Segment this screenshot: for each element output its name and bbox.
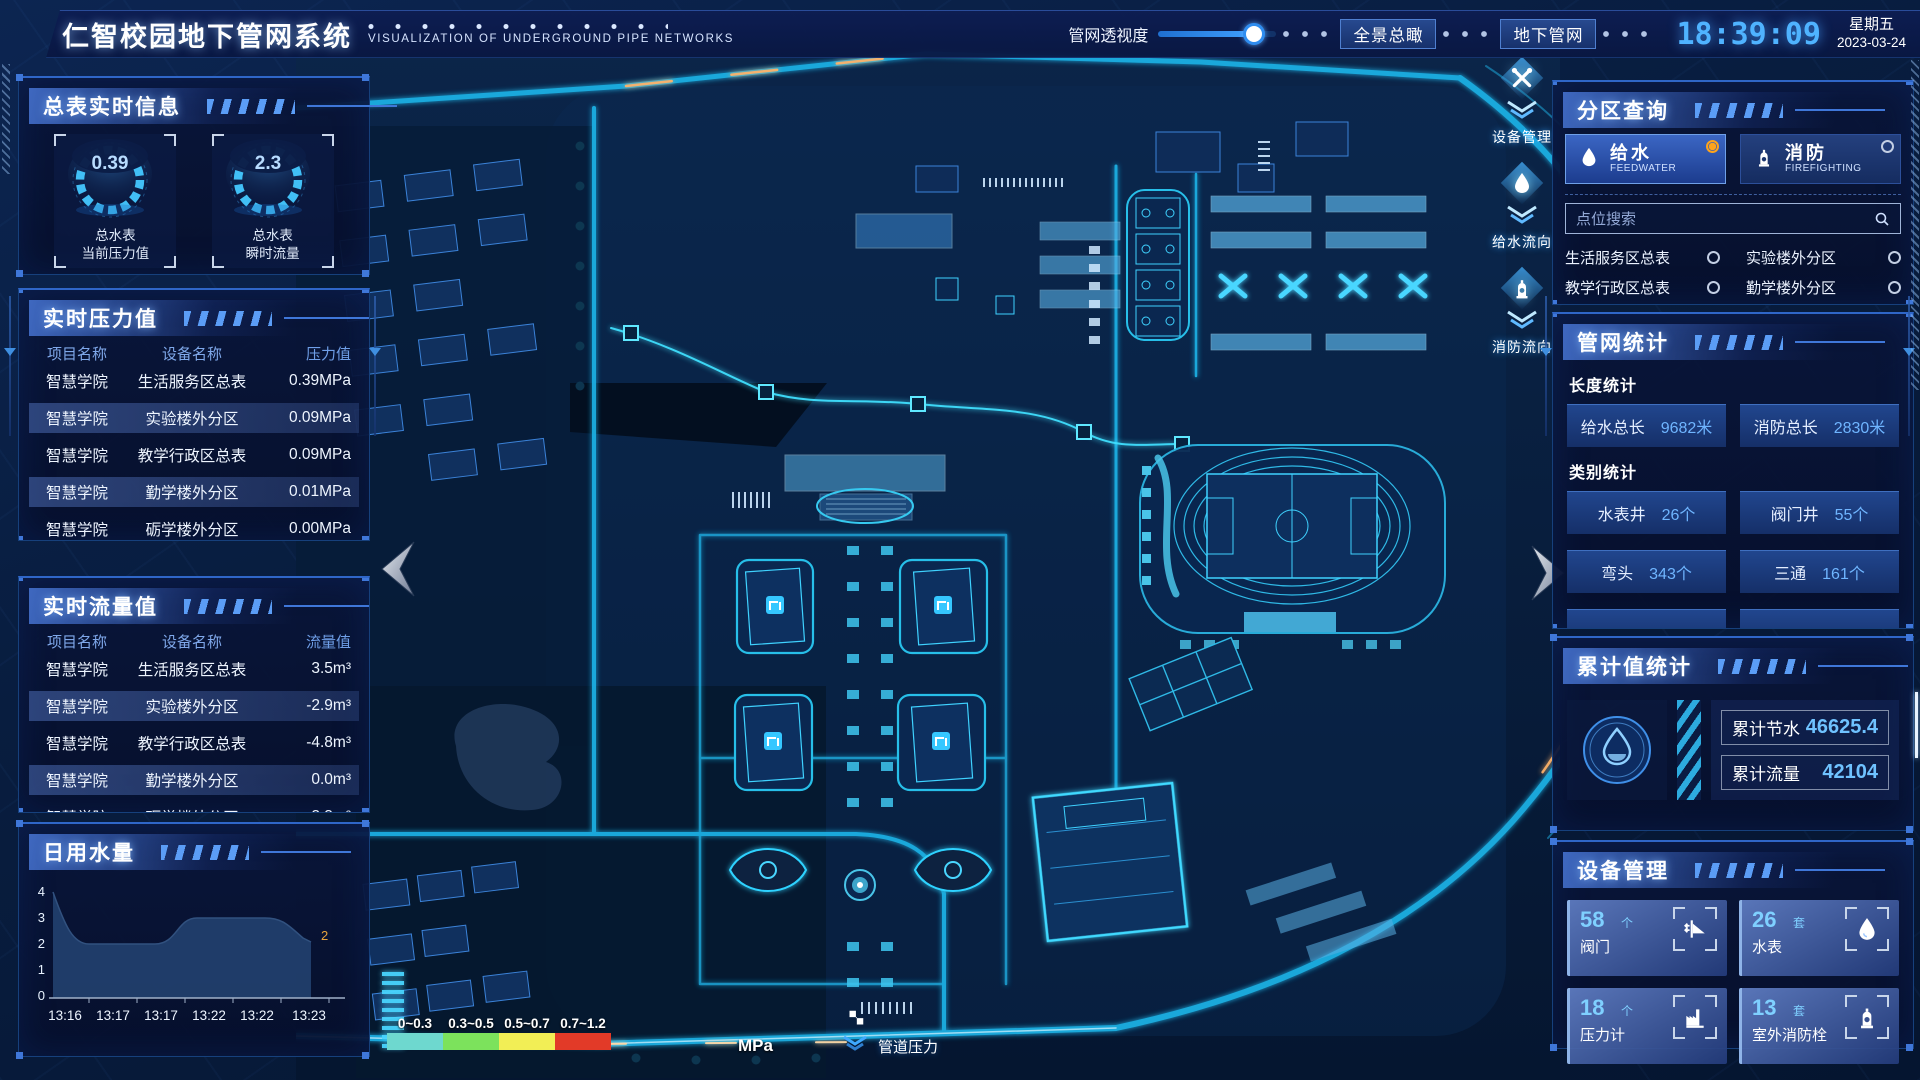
pipe-network-stats-panel: 管网统计 长度统计 给水总长 9682米 消防总长 2830米 类别统计 水表井… [1552, 312, 1914, 629]
dots-decoration [1282, 30, 1334, 38]
x-tick: 13:17 [144, 1008, 178, 1023]
x-tick: 13:22 [192, 1008, 226, 1023]
fire-flow-overlay-button[interactable]: 消防流向 [1492, 266, 1552, 357]
legend-color-green [443, 1033, 499, 1050]
triangle-marker [1540, 348, 1552, 356]
stat-box-clipped [1740, 609, 1899, 629]
col-project: 项目名称 [29, 343, 125, 364]
underground-pipes-button[interactable]: 地下管网 [1500, 19, 1596, 49]
zigzag-decoration [1911, 60, 1919, 390]
dots-decoration [1442, 30, 1494, 38]
zone-radio[interactable] [1707, 281, 1720, 294]
water-drop-badge [1567, 700, 1667, 800]
end-point-label: 2 [321, 928, 328, 943]
tab-radio-selected[interactable] [1706, 140, 1719, 153]
table-row: 智慧学院 砺学楼外分区 0.00MPa [29, 514, 359, 541]
gauge-pressure: 0.39 总水表 当前压力值 [54, 134, 176, 268]
y-tick: 0 [38, 988, 45, 1003]
point-search-input[interactable]: 点位搜索 [1565, 203, 1901, 234]
section-title: 实时流量值 [43, 591, 158, 621]
area-series [53, 892, 311, 998]
legend-unit: MPa [738, 1036, 773, 1056]
water-meter-icon [1845, 907, 1889, 951]
triangle-marker [4, 348, 16, 356]
chevron-down-icon [1505, 205, 1539, 225]
scroll-indicator[interactable] [1915, 692, 1918, 758]
stat-box: 给水总长 9682米 [1567, 404, 1726, 447]
section-title: 日用水量 [43, 837, 135, 867]
device-card-valves[interactable]: 58 个 阀门 [1567, 900, 1727, 976]
stat-box: 水表井 26个 [1567, 491, 1726, 534]
legend-color-red [555, 1033, 611, 1050]
device-card-water-meters[interactable]: 26 套 水表 [1739, 900, 1899, 976]
dashboard: 设备管理 给水流向 消防流向 [0, 0, 1920, 1080]
legend-range-label: 0.3~0.5 [443, 1016, 499, 1031]
gauge-value: 0.39 [92, 153, 129, 174]
zone-item[interactable]: 勤学楼外分区 [1746, 272, 1901, 302]
x-tick: 13:16 [48, 1008, 82, 1023]
table-row: 智慧学院 实验楼外分区 -2.9m³ [29, 691, 359, 721]
hydrant-icon [1845, 995, 1889, 1039]
section-header: 总表实时信息 [29, 88, 359, 124]
overlay-label: 设备管理 [1492, 127, 1552, 147]
gauge-metric: 瞬时流量 [212, 245, 334, 263]
pipe-pressure-label: 管道压力 [878, 1036, 938, 1057]
daily-water-chart: 4 3 2 1 0 13:16 13:17 13:17 13:22 13:22 … [25, 874, 363, 1041]
y-tick: 2 [38, 936, 45, 951]
transparency-slider-label: 管网透视度 [1068, 22, 1148, 46]
app-subtitle-block: VISUALIZATION OF UNDERGROUND PIPE NETWOR… [368, 23, 734, 45]
slashes-decoration [1695, 863, 1783, 878]
cumulative-flow-box: 累计流量 42104 [1721, 755, 1889, 790]
clock: 18:39:09 [1676, 17, 1821, 52]
zone-item[interactable]: 生活服务区总表 [1565, 242, 1720, 272]
cumulative-stats-panel: 累计值统计 累计节水 46625.4 累计流量 42104 [1552, 636, 1914, 831]
table-header-row: 项目名称 设备名称 流量值 [29, 628, 359, 654]
category-stats-label: 类别统计 [1569, 459, 1897, 483]
section-title: 管网统计 [1577, 327, 1669, 357]
legend-color-cyan [387, 1033, 443, 1050]
device-management-overlay-button[interactable]: 设备管理 [1492, 56, 1552, 147]
legend-range-label: 0.7~1.2 [555, 1016, 611, 1031]
gauge-flow: 2.3 总水表 瞬时流量 [212, 134, 334, 268]
hydrant-icon [1753, 146, 1775, 173]
tab-firefighting[interactable]: 消防 FIREFIGHTING [1740, 134, 1901, 184]
chevron-down-icon [1505, 310, 1539, 330]
hydrant-icon [1500, 266, 1544, 310]
dashed-divider [1565, 194, 1901, 195]
zigzag-decoration [2, 64, 10, 174]
dots-decoration [368, 23, 668, 30]
stat-box: 消防总长 2830米 [1740, 404, 1899, 447]
pressure-table: 项目名称 设备名称 压力值 智慧学院 生活服务区总表 0.39MPa 智慧学院 … [29, 340, 359, 541]
date-block: 星期五 2023-03-24 [1837, 16, 1906, 52]
feedwater-flow-overlay-button[interactable]: 给水流向 [1492, 161, 1552, 252]
zone-radio[interactable] [1888, 251, 1901, 264]
valve-icon [1673, 907, 1717, 951]
stat-box-clipped [1567, 609, 1726, 629]
stat-box: 弯头 343个 [1567, 550, 1726, 593]
map-overlay-buttons: 设备管理 给水流向 消防流向 [1482, 56, 1562, 371]
stat-box: 三通 161个 [1740, 550, 1899, 593]
table-row: 智慧学院 教学行政区总表 -4.8m³ [29, 728, 359, 758]
table-row: 智慧学院 生活服务区总表 0.39MPa [29, 366, 359, 396]
slashes-decoration [184, 311, 272, 326]
section-title: 总表实时信息 [43, 91, 181, 121]
table-row: 智慧学院 生活服务区总表 3.5m³ [29, 654, 359, 684]
y-tick: 1 [38, 962, 45, 977]
stripe-decoration [1677, 700, 1701, 800]
zone-item[interactable]: 砺学楼外分区 [1565, 302, 1720, 305]
realtime-pressure-panel: 实时压力值 项目名称 设备名称 压力值 智慧学院 生活服务区总表 0.39MPa… [18, 288, 370, 541]
table-row: 智慧学院 勤学楼外分区 0.0m³ [29, 765, 359, 795]
rail-decoration [1908, 296, 1910, 436]
flow-table: 项目名称 设备名称 流量值 智慧学院 生活服务区总表 3.5m³ 智慧学院 实验… [29, 628, 359, 813]
gauge-dial: 2.3 [212, 136, 324, 222]
slashes-decoration [207, 99, 295, 114]
water-drop-icon [1578, 146, 1600, 173]
rail-decoration [374, 296, 376, 436]
length-stats-label: 长度统计 [1569, 372, 1897, 396]
pipe-pressure-icon[interactable] [840, 1008, 870, 1056]
legend-range-label: 0.5~0.7 [499, 1016, 555, 1031]
chevron-down-icon [1505, 100, 1539, 120]
app-title: 仁智校园地下管网系统 [62, 15, 352, 54]
triangle-marker [369, 348, 381, 356]
section-title: 分区查询 [1577, 95, 1669, 125]
app-subtitle: VISUALIZATION OF UNDERGROUND PIPE NETWOR… [368, 33, 734, 45]
table-row: 智慧学院 教学行政区总表 0.09MPa [29, 440, 359, 470]
device-management-panel: 设备管理 58 个 阀门 26 套 水表 [1552, 840, 1914, 1049]
dots-decoration [1602, 30, 1654, 38]
pan-left-arrow[interactable] [372, 538, 418, 600]
overview-button[interactable]: 全景总瞰 [1340, 19, 1436, 49]
section-title: 实时压力值 [43, 303, 158, 333]
tab-radio[interactable] [1881, 140, 1894, 153]
slashes-decoration [1695, 103, 1783, 118]
pressure-gauge-icon [1673, 995, 1717, 1039]
y-tick: 4 [38, 884, 45, 899]
table-row: 智慧学院 砺学楼外分区 -2.3m³ [29, 802, 359, 813]
col-project: 项目名称 [29, 631, 125, 652]
section-title: 累计值统计 [1577, 651, 1692, 681]
table-row: 智慧学院 实验楼外分区 0.09MPa [29, 403, 359, 433]
zone-item[interactable]: 实验楼外分区 [1746, 242, 1901, 272]
zone-query-panel: 分区查询 给水 FEEDWATER 消防 FIREFIGHTING [1552, 80, 1914, 305]
x-tick: 13:22 [240, 1008, 274, 1023]
search-placeholder: 点位搜索 [1576, 208, 1874, 229]
col-device: 设备名称 [125, 631, 259, 652]
master-meter-panel: 总表实时信息 0.39 总水表 当前压力值 [18, 76, 370, 275]
table-header-row: 项目名称 设备名称 压力值 [29, 340, 359, 366]
y-tick: 3 [38, 910, 45, 925]
transparency-slider[interactable] [1158, 31, 1276, 37]
device-card-pressure-gauges[interactable]: 18 个 压力计 [1567, 988, 1727, 1064]
cumulative-saving-box: 累计节水 46625.4 [1721, 710, 1889, 745]
overlay-label: 给水流向 [1492, 232, 1552, 252]
x-tick: 13:23 [292, 1008, 326, 1023]
zone-radio[interactable] [1888, 281, 1901, 294]
col-device: 设备名称 [125, 343, 259, 364]
rail-decoration [9, 296, 11, 436]
gauge-name: 总水表 [54, 227, 176, 245]
col-value: 压力值 [259, 343, 359, 364]
zone-item[interactable]: 宿舍区泵房 [1746, 302, 1901, 305]
pressure-legend: 0~0.3 0.3~0.5 0.5~0.7 0.7~1.2 [387, 1016, 611, 1050]
slashes-decoration [1718, 659, 1806, 674]
device-card-hydrants[interactable]: 13 套 室外消防栓 [1739, 988, 1899, 1064]
legend-color-yellow [499, 1033, 555, 1050]
gauge-dial: 0.39 [54, 136, 166, 222]
weekday: 星期五 [1849, 16, 1894, 35]
col-value: 流量值 [259, 631, 359, 652]
date: 2023-03-24 [1837, 35, 1906, 52]
gauge-value: 2.3 [254, 153, 280, 174]
tab-feedwater[interactable]: 给水 FEEDWATER [1565, 134, 1726, 184]
daily-water-panel: 日用水量 4 3 2 1 0 13:16 13:17 13:17 13:22 1… [18, 822, 370, 1057]
zone-radio[interactable] [1707, 251, 1720, 264]
zone-item[interactable]: 教学行政区总表 [1565, 272, 1720, 302]
tools-icon [1500, 56, 1544, 100]
gauge-name: 总水表 [212, 227, 334, 245]
gauge-metric: 当前压力值 [54, 245, 176, 263]
slider-fill [1158, 31, 1254, 37]
rail-decoration [1545, 296, 1547, 436]
header-bar: 仁智校园地下管网系统 VISUALIZATION OF UNDERGROUND … [46, 10, 1920, 58]
section-title: 设备管理 [1577, 855, 1669, 885]
x-tick: 13:17 [96, 1008, 130, 1023]
water-drop-icon [1500, 161, 1544, 205]
search-icon[interactable] [1874, 211, 1890, 227]
campus-map-3d[interactable] [296, 46, 1560, 1080]
slashes-decoration [184, 599, 272, 614]
slashes-decoration [161, 845, 249, 860]
stat-box: 阀门井 55个 [1740, 491, 1899, 534]
table-row: 智慧学院 勤学楼外分区 0.01MPa [29, 477, 359, 507]
slider-thumb[interactable] [1243, 23, 1265, 45]
legend-range-label: 0~0.3 [387, 1016, 443, 1031]
slashes-decoration [1695, 335, 1783, 350]
realtime-flow-panel: 实时流量值 项目名称 设备名称 流量值 智慧学院 生活服务区总表 3.5m³ 智… [18, 576, 370, 813]
